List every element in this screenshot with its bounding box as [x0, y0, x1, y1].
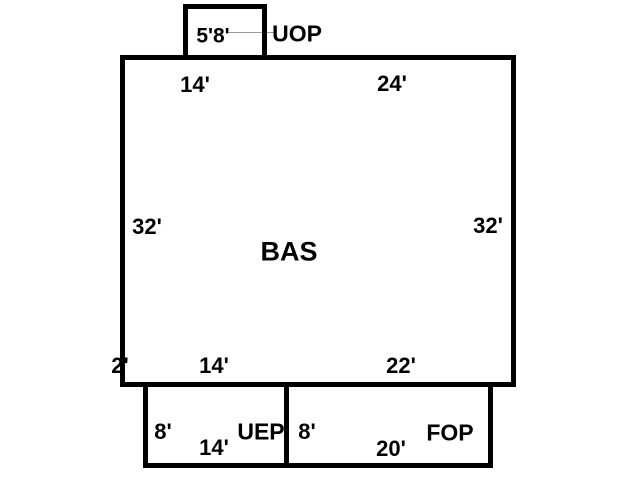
bas-name-label: BAS — [260, 239, 317, 266]
uep-height-dimension-label: 8' — [154, 421, 171, 443]
bas-bottom-left-dimension-label: 14' — [199, 355, 229, 377]
uep-width-dimension-label: 14' — [199, 437, 229, 459]
bas-top-left-dimension-label: 14' — [180, 74, 210, 96]
uop-name-label: UOP — [272, 23, 322, 46]
fop-height-dimension-label: 8' — [298, 421, 315, 443]
bas-room-outline — [120, 55, 516, 387]
bas-bottom-right-dimension-label: 22' — [386, 355, 416, 377]
bas-bottom-corner-dimension-label: 2' — [111, 355, 128, 377]
fop-name-label: FOP — [426, 422, 473, 445]
floor-plan-canvas: 5'8' UOP 14' 24' 32' 32' BAS 2' 14' 22' … — [0, 0, 640, 480]
bas-right-dimension-label: 32' — [473, 215, 503, 237]
uep-name-label: UEP — [237, 421, 284, 444]
uop-dimension-label: 5'8' — [196, 26, 229, 47]
fop-width-dimension-label: 20' — [376, 438, 406, 460]
bas-top-right-dimension-label: 24' — [377, 73, 407, 95]
bas-left-dimension-label: 32' — [132, 216, 162, 238]
